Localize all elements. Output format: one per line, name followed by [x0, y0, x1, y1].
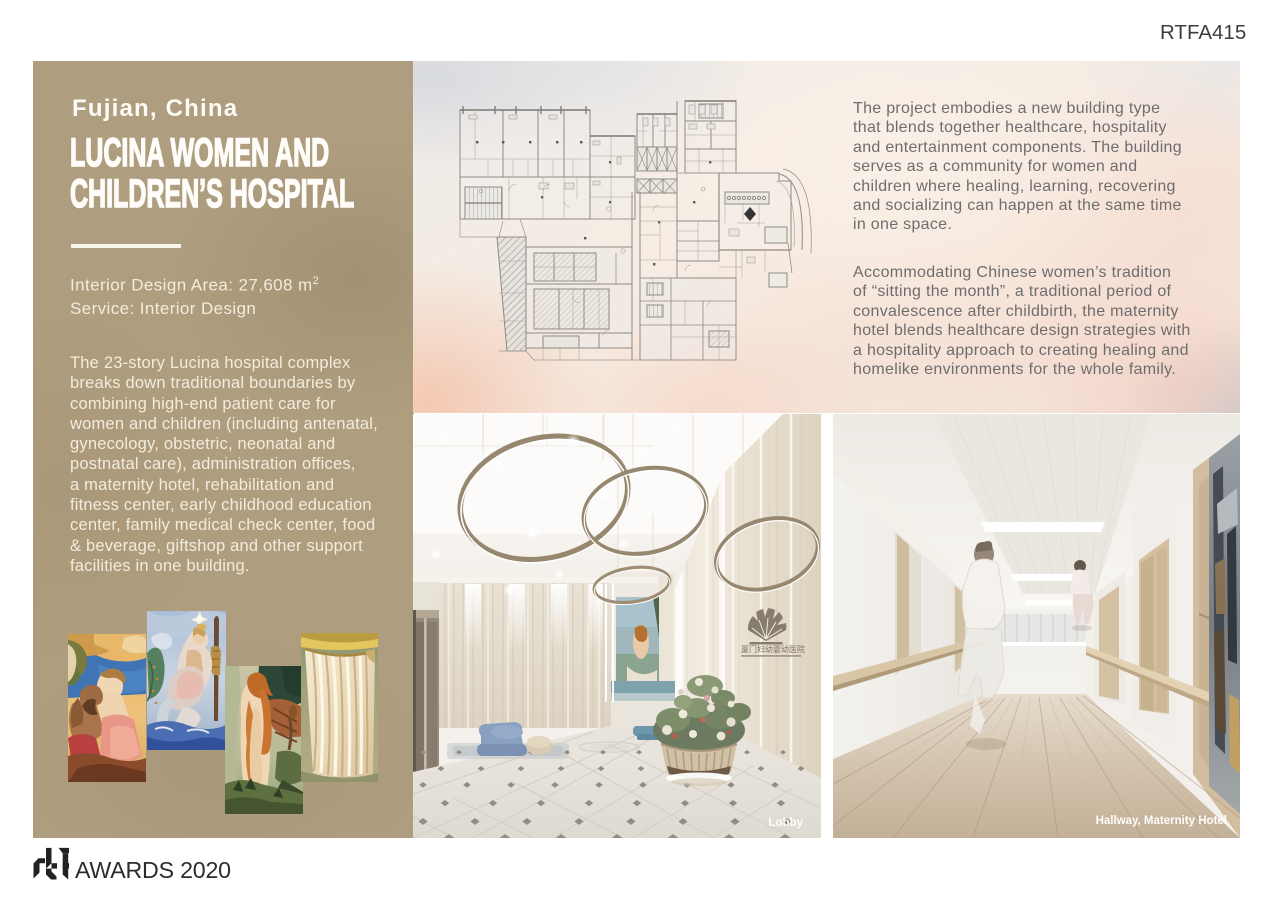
svg-text:Lobby: Lobby [769, 817, 804, 829]
svg-text:Hallway, Maternity Hotel: Hallway, Maternity Hotel [1096, 815, 1227, 827]
svg-text:AWARDS 2020: AWARDS 2020 [75, 857, 231, 883]
svg-text:厦门妇幼婴幼医院: 厦门妇幼婴幼医院 [741, 644, 805, 654]
